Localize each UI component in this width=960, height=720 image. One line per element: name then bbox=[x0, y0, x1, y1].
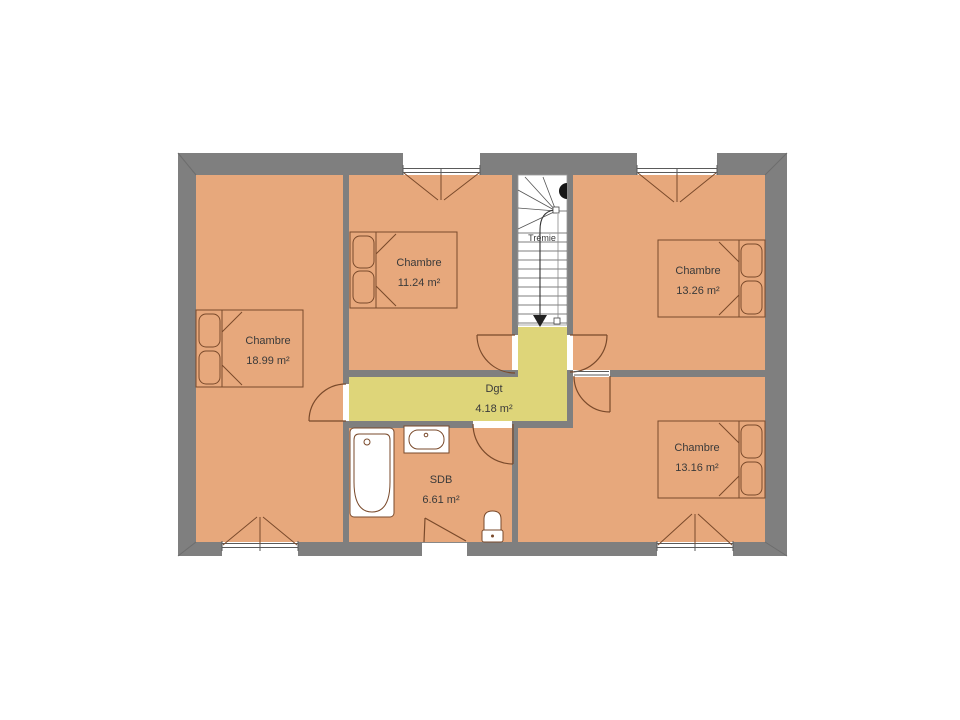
room-label-chambre-1: Chambre 18.99 m² bbox=[213, 331, 323, 371]
window-gap-bottom-chambre4 bbox=[657, 542, 733, 556]
outer-wall-left bbox=[178, 153, 196, 556]
room-area: 4.18 m² bbox=[439, 399, 549, 419]
room-label-tremie: Trémie bbox=[502, 233, 582, 243]
room-area: 13.16 m² bbox=[642, 458, 752, 478]
window-gap-top-chambre3 bbox=[637, 153, 717, 175]
stairwell-fill bbox=[518, 175, 567, 327]
room-name: Chambre bbox=[643, 261, 753, 281]
wall-corridor-bottom-left bbox=[349, 421, 473, 428]
room-name: Trémie bbox=[528, 233, 556, 243]
room-area: 11.24 m² bbox=[364, 273, 474, 293]
wall-divider-right bbox=[610, 370, 765, 377]
room-name: Chambre bbox=[213, 331, 323, 351]
room-name: Chambre bbox=[364, 253, 474, 273]
wall-corridor-top bbox=[349, 370, 518, 377]
room-area: 6.61 m² bbox=[386, 490, 496, 510]
room-name: Chambre bbox=[642, 438, 752, 458]
window-gap-bottom-chambre1 bbox=[222, 542, 298, 556]
hallway-fill-vertical bbox=[518, 327, 567, 377]
wall-chambre1-upper bbox=[343, 175, 349, 384]
wall-sdb-right bbox=[512, 428, 518, 542]
wall-chambre1-lower bbox=[343, 421, 349, 542]
room-name: Dgt bbox=[439, 379, 549, 399]
wall-hall-right bbox=[567, 370, 573, 421]
wall-corridor-bottom-right bbox=[512, 421, 573, 428]
room-label-sdb: SDB 6.61 m² bbox=[386, 470, 496, 510]
room-label-chambre-3: Chambre 13.26 m² bbox=[643, 261, 753, 301]
room-label-chambre-2: Chambre 11.24 m² bbox=[364, 253, 474, 293]
room-area: 13.26 m² bbox=[643, 281, 753, 301]
room-label-dgt: Dgt 4.18 m² bbox=[439, 379, 549, 419]
room-label-chambre-4: Chambre 13.16 m² bbox=[642, 438, 752, 478]
outer-wall-right bbox=[765, 153, 787, 556]
room-chambre-4-fill-b bbox=[518, 428, 573, 542]
wall-stair-right bbox=[567, 175, 573, 335]
floor-plan: Chambre 18.99 m² Chambre 11.24 m² Chambr… bbox=[0, 0, 960, 720]
window-gap-top-chambre2 bbox=[403, 153, 480, 175]
wall-stair-left bbox=[512, 175, 518, 335]
room-name: SDB bbox=[386, 470, 496, 490]
room-area: 18.99 m² bbox=[213, 351, 323, 371]
door-gap-bottom-sdb bbox=[422, 542, 467, 558]
